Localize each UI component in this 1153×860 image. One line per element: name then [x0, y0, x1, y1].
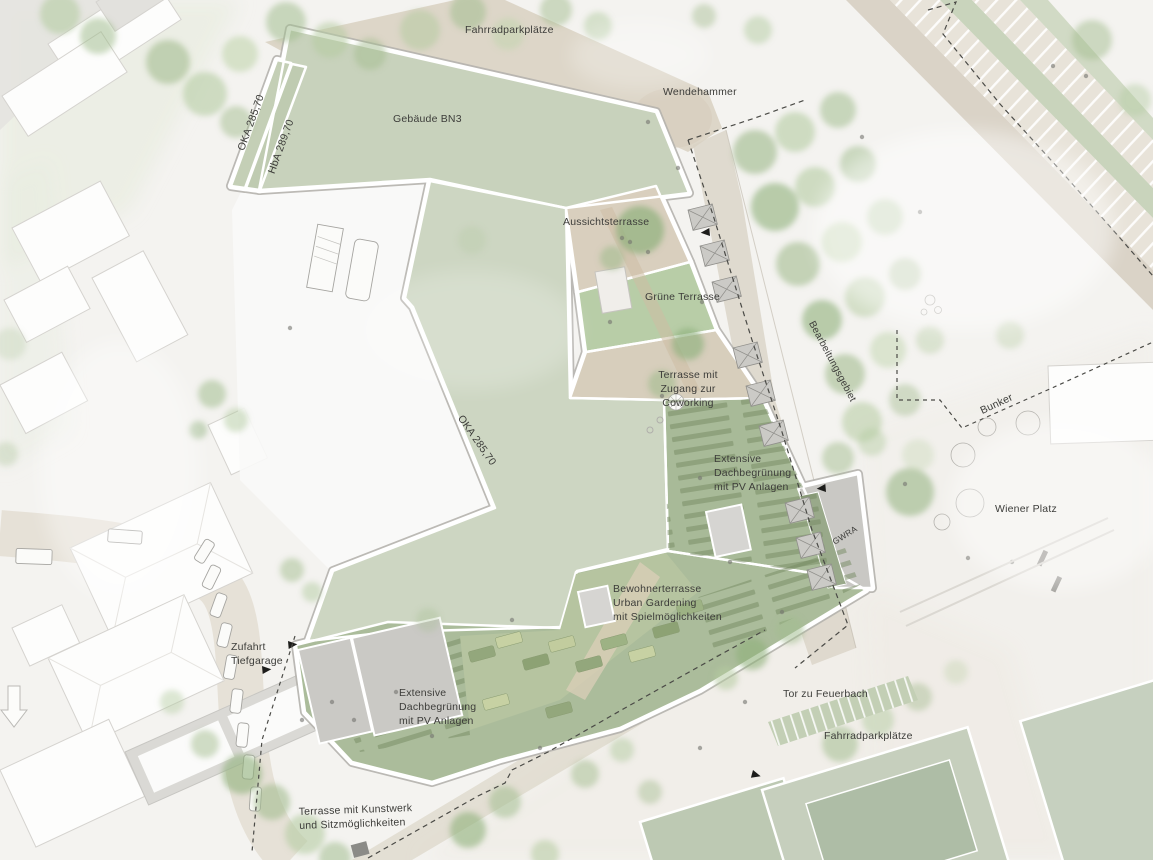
building — [0, 719, 145, 847]
label-tor-zu-feuerbach: Tor zu Feuerbach — [783, 688, 868, 702]
label-fahrradparkplaetze-nord: Fahrradparkplätze — [465, 24, 554, 38]
label-zufahrt-tiefgarage: Zufahrt Tiefgarage — [231, 641, 283, 669]
site-plan-drawing — [0, 0, 1153, 860]
label-bewohnerterrasse: Bewohnerterrasse Urban Gardening mit Spi… — [613, 583, 722, 625]
label-gruene-terrasse: Grüne Terrasse — [645, 291, 720, 305]
label-dachbegruenung-ost: Extensive Dachbegrünung mit PV Anlagen — [714, 453, 791, 495]
label-gebaeude-bn3: Gebäude BN3 — [393, 113, 462, 127]
label-wiener-platz: Wiener Platz — [995, 503, 1057, 517]
truck-icon — [16, 548, 53, 564]
arrow-icon — [700, 228, 710, 237]
garage-ramp-arrow-icon — [1, 686, 27, 727]
label-dachbegruenung-sued: Extensive Dachbegrünung mit PV Anlagen — [399, 687, 476, 729]
label-terrasse-coworking: Terrasse mit Zugang zur Coworking — [656, 369, 720, 411]
label-fahrradparkplaetze-sued: Fahrradparkplätze — [824, 730, 913, 744]
label-terrasse-kunstwerk: Terrasse mit Kunstwerk und Sitzmöglichke… — [299, 802, 413, 834]
site-plan: Fahrradparkplätze Wendehammer OKA 285,70… — [0, 0, 1153, 860]
label-aussichtsterrasse: Aussichtsterrasse — [563, 216, 649, 230]
label-wendehammer: Wendehammer — [663, 86, 737, 100]
